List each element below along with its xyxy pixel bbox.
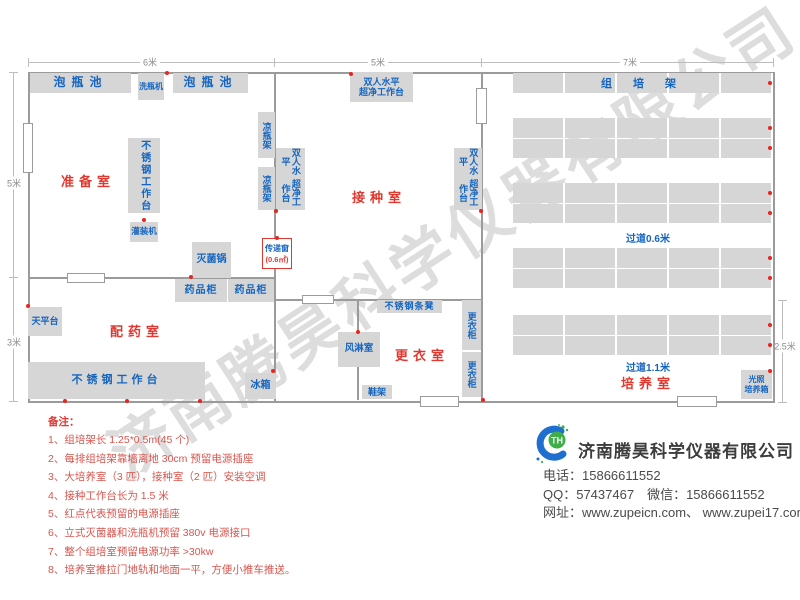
dim-label-6m: 6米 xyxy=(140,56,160,69)
light-incubator: 光照培养箱 xyxy=(741,370,772,399)
culture-rack-row-6 xyxy=(513,248,773,268)
sliding-door-inoculation-culture xyxy=(476,88,487,124)
culture-rack-row-7 xyxy=(513,269,773,288)
left-dimension-line xyxy=(13,72,14,402)
company-name: 济南腾昊科学仪器有限公司 xyxy=(578,437,794,462)
dim-label-2-5m: 2.5米 xyxy=(771,340,799,353)
pass-window-area: (0.6㎡) xyxy=(266,254,289,265)
clean-bench-line1: 双人水平 xyxy=(363,77,399,87)
room-label-inoculate: 接种室 xyxy=(339,187,419,206)
company-qq-wechat: QQ：57437467 微信：15866611552 xyxy=(543,484,765,503)
power-outlet-dot xyxy=(768,81,772,85)
steel-workbench-dispense: 不锈钢工作台 xyxy=(28,362,205,399)
power-outlet-dot xyxy=(768,256,772,260)
floor-plan-canvas: 济南腾昊科学仪器有限公司 6米 5米 7米 5米 3米 2.5米 泡瓶池 洗瓶机… xyxy=(0,0,800,600)
culture-rack-row-2 xyxy=(513,118,773,138)
air-shower: 风淋室 xyxy=(338,332,380,367)
power-outlet-dot xyxy=(26,304,30,308)
dim-label-5m-left: 5米 xyxy=(4,177,24,190)
culture-rack-row-9 xyxy=(513,336,773,355)
culture-rack-row-8 xyxy=(513,315,773,335)
power-outlet-dot xyxy=(768,146,772,150)
power-outlet-dot xyxy=(198,399,202,403)
note-item: 8、培养室推拉门地轨和地面一平，方便小推车推送。 xyxy=(48,562,295,577)
power-outlet-dot xyxy=(349,72,353,76)
power-outlet-dot xyxy=(271,369,275,373)
steel-stool: 不锈钢条凳 xyxy=(377,300,442,313)
clean-bench-line2: 超净工作台 xyxy=(458,176,479,210)
power-outlet-dot xyxy=(275,236,279,240)
power-outlet-dot xyxy=(63,399,67,403)
culture-rack-row-4 xyxy=(513,183,773,203)
dim-label-5m-top: 5米 xyxy=(368,56,388,69)
aisle-label-1-1m: 过道1.1米 xyxy=(598,359,698,374)
power-outlet-dot xyxy=(768,369,772,373)
aisle-label-0-6m: 过道0.6米 xyxy=(598,230,698,245)
power-outlet-dot xyxy=(274,209,278,213)
culture-rack-row-3 xyxy=(513,139,773,158)
clean-bench-top-text: 双人水平超净工作台 xyxy=(359,77,404,98)
door-culture-room xyxy=(677,396,717,407)
steel-workbench-prep: 不锈钢工作台 xyxy=(128,138,160,213)
balance-table: 天平台 xyxy=(28,307,62,336)
clean-bench-left: 双人水平 超净工作台 xyxy=(276,148,305,210)
locker-1: 更衣柜 xyxy=(462,300,481,350)
company-logo: TH xyxy=(532,423,574,470)
room-label-change: 更衣室 xyxy=(382,345,462,364)
soak-pool-right: 泡瓶池 xyxy=(173,73,248,93)
cooling-rack-2: 凉瓶架 xyxy=(258,167,275,210)
note-item: 3、大培养室（3 匹），接种室（2 匹）安装空调 xyxy=(48,469,295,484)
clean-bench-line2: 超净工作台 xyxy=(359,87,404,97)
shoe-rack: 鞋架 xyxy=(362,385,392,399)
dim-tick xyxy=(9,277,18,278)
clean-bench-line1: 双人水平 xyxy=(458,148,479,176)
pass-through-window: 传递窗 (0.6㎡) xyxy=(262,238,292,269)
clean-bench-line2: 超净工作台 xyxy=(280,176,301,210)
power-outlet-dot xyxy=(356,330,360,334)
power-outlet-dot xyxy=(768,323,772,327)
power-outlet-dot xyxy=(479,209,483,213)
note-item: 7、整个组培室预留电源功率 >30kw xyxy=(48,544,295,559)
dim-tick xyxy=(9,401,18,402)
medicine-cabinet-2: 药品柜 xyxy=(228,279,274,302)
company-logo-svg: TH xyxy=(532,423,574,465)
culture-rack-label: 组 培 架 xyxy=(601,75,685,91)
notes-block: 备注： 1、组培架长 1.25*0.5m(45 个) 2、每排组培架靠墙离地 3… xyxy=(48,414,295,581)
room-label-culture: 培养室 xyxy=(608,373,688,392)
power-outlet-dot xyxy=(189,275,193,279)
sterilizer: 灭菌锅 xyxy=(192,242,231,278)
dim-tick xyxy=(9,72,18,73)
light-incubator-line2: 培养箱 xyxy=(745,385,769,394)
pass-window-label: 传递窗 xyxy=(265,243,289,254)
power-outlet-dot xyxy=(768,343,772,347)
dim-tick xyxy=(773,58,774,67)
power-outlet-dot xyxy=(142,218,146,222)
soak-pool-left: 泡瓶池 xyxy=(30,73,131,93)
note-item: 4、接种工作台长为 1.5 米 xyxy=(48,488,295,503)
note-item: 5、红点代表预留的电源插座 xyxy=(48,506,295,521)
power-outlet-dot xyxy=(768,276,772,280)
clean-bench-right: 双人水平 超净工作台 xyxy=(454,148,482,210)
bottle-washer: 洗瓶机 xyxy=(138,73,164,100)
cooling-rack-1: 凉瓶架 xyxy=(258,112,275,158)
power-outlet-dot xyxy=(768,211,772,215)
culture-rack-row-5 xyxy=(513,204,773,223)
note-item: 2、每排组培架靠墙离地 30cm 预留电源插座 xyxy=(48,451,295,466)
note-item: 6、立式灭菌器和洗瓶机预留 380v 电源接口 xyxy=(48,525,295,540)
light-incubator-line1: 光照 xyxy=(749,375,765,384)
dim-tick xyxy=(274,58,275,67)
door-change-room xyxy=(420,396,459,407)
power-outlet-dot xyxy=(125,399,129,403)
room-label-prep: 准备室 xyxy=(48,171,128,190)
clean-bench-line1: 双人水平 xyxy=(280,148,301,176)
locker-2: 更衣柜 xyxy=(462,352,481,397)
culture-rack-row-1: 组 培 架 xyxy=(513,73,773,93)
power-outlet-dot xyxy=(768,126,772,130)
power-outlet-dot xyxy=(481,398,485,402)
note-item: 1、组培架长 1.25*0.5m(45 个) xyxy=(48,432,295,447)
light-incubator-text: 光照培养箱 xyxy=(745,375,769,393)
logo-th-text: TH xyxy=(551,436,563,446)
power-outlet-dot xyxy=(768,191,772,195)
notes-title: 备注： xyxy=(48,414,295,429)
door-prep-dispense xyxy=(67,273,105,283)
clean-bench-top: 双人水平超净工作台 xyxy=(350,72,413,102)
door-inoculation-change xyxy=(302,295,334,304)
medicine-cabinet-1: 药品柜 xyxy=(175,279,227,302)
dim-label-7m: 7米 xyxy=(620,56,640,69)
company-phone: 电话：15866611552 xyxy=(543,465,661,484)
room-label-dispense: 配药室 xyxy=(97,321,177,340)
dim-tick xyxy=(481,58,482,67)
dim-tick xyxy=(28,58,29,67)
company-website: 网址：www.zupeicn.com、 www.zupei17.com xyxy=(543,502,800,521)
dim-tick xyxy=(778,402,787,403)
power-outlet-dot xyxy=(165,71,169,75)
filling-machine: 灌装机 xyxy=(130,222,158,242)
fridge: 冰箱 xyxy=(245,373,276,399)
window-left-wall xyxy=(23,123,33,173)
dim-tick xyxy=(778,300,787,301)
dim-label-3m: 3米 xyxy=(4,336,24,349)
